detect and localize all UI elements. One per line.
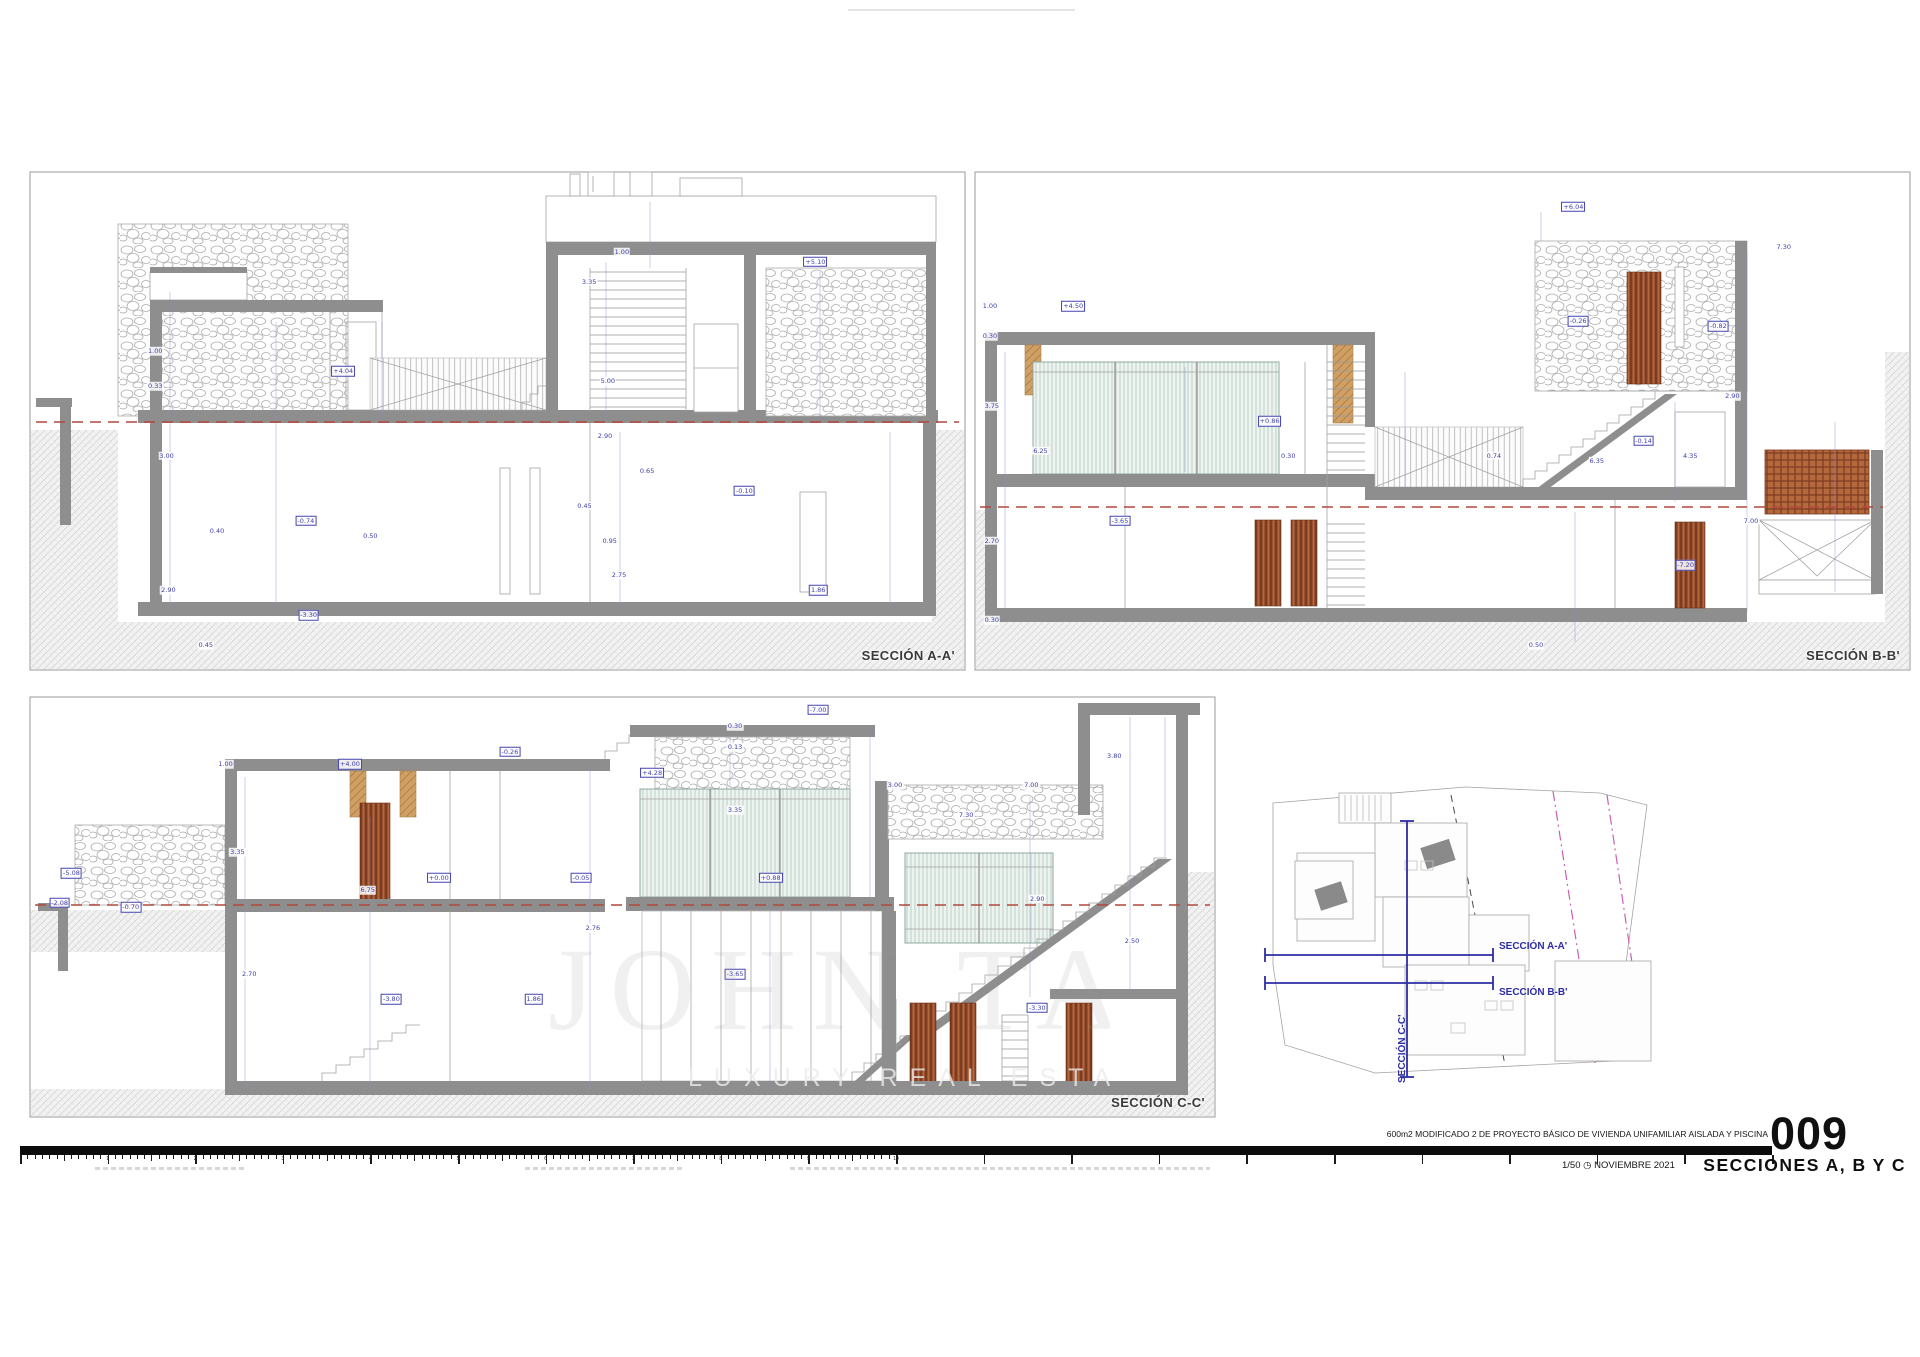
scale-tick [392,1155,393,1159]
scale-tick [319,1155,320,1159]
scale-tick [509,1155,510,1159]
scale-tick [655,1155,656,1159]
dim-label: +5.10 [803,256,827,267]
dim-label: 0.30 [1280,452,1296,461]
scale-tick-number: 5 [457,1156,460,1162]
dim-label: 0.30 [727,722,743,731]
scale-tick [852,1155,853,1161]
scale-tick [1246,1155,1248,1164]
section-c-box: -7.000.300.13+4.001.00-0.26+4.283.353.00… [30,697,1215,1117]
dim-label: 0.74 [1486,452,1502,461]
scale-tick [86,1155,87,1159]
scale-tick [662,1155,663,1159]
scale-tick [845,1155,846,1159]
scale-tick [881,1155,882,1159]
scale-tick [502,1155,503,1161]
scale-tick [130,1155,131,1159]
dim-label: 0.13 [727,743,743,752]
dim-label: 0.50 [362,531,378,540]
section-a-label: SECCIÓN A-A' [862,648,955,663]
scale-tick [648,1155,649,1159]
scale-tick [495,1155,496,1159]
dim-label: 1.86 [524,994,542,1005]
scale-tick [181,1155,182,1159]
scale-tick [553,1155,554,1159]
graphic-scale-bar [20,1146,1772,1155]
dim-label: 0.45 [198,641,214,650]
dim-label: +4.50 [1061,301,1085,312]
scale-tick [692,1155,693,1159]
dim-label: +0.88 [759,872,783,883]
scale-tick [246,1155,247,1159]
scale-tick [589,1155,590,1161]
scale-notes [95,1167,245,1170]
section-c-dims: -7.000.300.13+4.001.00-0.26+4.283.353.00… [30,697,1215,1117]
scale-tick [1684,1155,1686,1164]
scale-tick [597,1155,598,1159]
dim-label: -0.14 [1633,436,1654,447]
scale-tick [42,1155,43,1159]
scale-tick [429,1155,430,1159]
scale-tick [261,1155,262,1159]
scale-tick [560,1155,561,1159]
scale-tick [1334,1155,1336,1164]
dim-label: 0.40 [209,526,225,535]
scale-tick [349,1155,350,1159]
scale-tick [677,1155,678,1161]
scale-tick [830,1155,831,1159]
dim-label: 1.00 [147,347,163,356]
dim-label: 2.90 [597,432,613,441]
dim-label: -3.30 [1027,1003,1048,1014]
scale-tick-number: 4 [369,1156,372,1162]
scale-tick [305,1155,306,1159]
scale-tick [57,1155,58,1159]
dim-label: 3.75 [984,402,1000,411]
scale-tick [524,1155,525,1159]
scale-tick [363,1155,364,1159]
scale-value: 1/50 [1562,1160,1581,1171]
drawing-sheet: 1.000.33+4.043.000.40-0.740.502.90-3.303… [0,0,1920,1357]
dim-label: 6.25 [1032,447,1048,456]
scale-tick [611,1155,612,1159]
scale-tick [838,1155,839,1159]
scale-tick [385,1155,386,1159]
siteplan-label-a: SECCIÓN A-A' [1499,941,1567,952]
scale-tick [743,1155,744,1159]
scale-tick [137,1155,138,1159]
section-a-box: 1.000.33+4.043.000.40-0.740.502.90-3.303… [30,172,965,670]
scale-notes [525,1167,685,1170]
scale-tick [757,1155,758,1159]
scale-tick-number: 1 [106,1156,109,1162]
dim-label: 6.75 [359,886,375,895]
scale-tick [422,1155,423,1159]
scale-tick-number: 2 [194,1156,197,1162]
dim-label: 2.90 [1029,894,1045,903]
dim-label: +4.28 [640,767,664,778]
dim-label: 5.00 [600,377,616,386]
dim-label: -7.20 [1675,560,1696,571]
scale-tick-number: 3 [281,1156,284,1162]
dim-label: -0.70 [120,902,141,913]
dim-label: 1.00 [217,760,233,769]
scale-tick [20,1155,22,1164]
scale-tick [122,1155,123,1159]
section-b-label: SECCIÓN B-B' [1806,648,1900,663]
sheet-title: SECCIONES A, B Y C [1703,1155,1906,1176]
dim-label: 0.65 [639,467,655,476]
siteplan-label-c: SECCIÓN C-C' [1397,1015,1408,1084]
dim-label: +0.86 [1258,416,1282,427]
scale-tick [166,1155,167,1159]
scale-tick [144,1155,145,1159]
dim-label: +4.04 [331,366,355,377]
dim-label: 0.30 [982,332,998,341]
dim-label: 1.00 [982,302,998,311]
scale-tick [224,1155,225,1159]
scale-tick [480,1155,481,1159]
dim-label: 2.70 [984,536,1000,545]
scale-tick [823,1155,824,1159]
scale-tick [27,1155,28,1159]
scale-tick [487,1155,488,1159]
scale-tick-number: 6 [544,1156,547,1162]
compass-icon: ◷ [1583,1160,1591,1171]
dim-label: 7.30 [1776,242,1792,251]
scale-tick [765,1155,766,1161]
dim-label: 4.35 [1682,452,1698,461]
dim-label: 2.75 [611,571,627,580]
scale-tick [465,1155,466,1159]
dim-label: 2.50 [1124,936,1140,945]
scale-tick [801,1155,802,1159]
scale-tick [706,1155,707,1159]
scale-tick [874,1155,875,1159]
scale-tick [78,1155,79,1159]
scale-tick [867,1155,868,1159]
dim-label: 3.00 [158,452,174,461]
dim-label: 0.50 [1528,641,1544,650]
scale-tick [670,1155,671,1159]
scale-tick [297,1155,298,1159]
scale-tick-number: 8 [719,1156,722,1162]
dim-label: 0.33 [147,382,163,391]
scale-tick [1509,1155,1511,1164]
dim-label: 2.76 [585,924,601,933]
scale-tick [64,1155,65,1161]
scale-tick [816,1155,817,1159]
dim-label: -3.30 [298,610,319,621]
scale-tick [341,1155,342,1159]
scale-tick [115,1155,116,1159]
scale-tick [254,1155,255,1159]
scale-tick [451,1155,452,1159]
dim-label: -0.26 [500,746,521,757]
project-title: 600m2 MODIFICADO 2 DE PROYECTO BÁSICO DE… [1387,1129,1768,1139]
dim-label: -3.65 [1110,515,1131,526]
scale-notes [790,1167,1210,1170]
scale-tick-number: 7 [632,1156,635,1162]
dim-label: 2.70 [241,970,257,979]
dim-label: -3.65 [725,969,746,980]
scale-tick [473,1155,474,1159]
section-b-box: +6.04+4.501.000.303.75-0.26-0.82+0.866.2… [975,172,1910,670]
scale-tick [71,1155,72,1159]
dim-label: 2.90 [160,586,176,595]
scale-tick [699,1155,700,1159]
scale-tick [1159,1155,1161,1164]
scale-tick [735,1155,736,1159]
scale-tick [575,1155,576,1159]
section-b-dims: +6.04+4.501.000.303.75-0.26-0.82+0.866.2… [975,172,1910,670]
scale-tick [151,1155,152,1161]
dim-label: -0.10 [734,485,755,496]
section-a-dims: 1.000.33+4.043.000.40-0.740.502.90-3.303… [30,172,965,670]
scale-tick [1071,1155,1073,1164]
scale-tick [210,1155,211,1159]
scale-tick [604,1155,605,1159]
siteplan-label-b: SECCIÓN B-B' [1499,987,1568,998]
sheet-number: 009 [1770,1108,1848,1160]
scale-tick [414,1155,415,1161]
scale-tick [356,1155,357,1159]
dim-label: 0.30 [984,616,1000,625]
scale-tick [217,1155,218,1159]
section-c-label: SECCIÓN C-C' [1111,1095,1205,1110]
scale-tick [794,1155,795,1159]
scale-tick [400,1155,401,1159]
scale-tick [750,1155,751,1159]
scale-tick [203,1155,204,1159]
scale-tick [159,1155,160,1159]
scale-tick-number: 10 [893,1156,899,1162]
scale-tick [290,1155,291,1159]
scale-tick [100,1155,101,1159]
scale-tick [582,1155,583,1159]
scale-tick [568,1155,569,1159]
scale-tick [268,1155,269,1159]
dim-label: -7.00 [808,704,829,715]
scale-tick [276,1155,277,1159]
scale-tick [787,1155,788,1159]
dim-label: 7.30 [958,810,974,819]
scale-tick [334,1155,335,1159]
scale-tick [779,1155,780,1159]
dim-label: -0.82 [1708,321,1729,332]
scale-tick [619,1155,620,1159]
dim-label: 0.95 [601,536,617,545]
scale-tick [239,1155,240,1161]
scale-tick [49,1155,50,1159]
dim-label: 3.35 [229,848,245,857]
scale-tick [312,1155,313,1159]
scale-tick [1422,1155,1424,1164]
dim-label: 1.86 [809,585,827,596]
dim-label: 3.35 [727,806,743,815]
scale-tick [516,1155,517,1159]
dim-label: 2.90 [1724,392,1740,401]
scale-tick [443,1155,444,1159]
scale-tick [327,1155,328,1161]
dim-label: +0.00 [427,872,451,883]
scale-tick [728,1155,729,1159]
scale-tick [407,1155,408,1159]
scale-tick [436,1155,437,1159]
siteplan: SECCIÓN A-A' SECCIÓN B-B' SECCIÓN C-C' [1255,765,1655,1105]
dim-label: -0.05 [571,872,592,883]
scale-tick [538,1155,539,1159]
dim-label: 3.00 [887,781,903,790]
dim-label: +4.00 [338,759,362,770]
scale-tick [93,1155,94,1159]
dim-label: -3.80 [381,994,402,1005]
scale-tick [714,1155,715,1159]
dim-label: -0.26 [1568,316,1589,327]
scale-tick-number: 9 [807,1156,810,1162]
dim-label: 6.35 [1589,457,1605,466]
scale-tick [860,1155,861,1159]
scale-tick [173,1155,174,1159]
scale-and-date: 1/50 ◷ NOVIEMBRE 2021 [1562,1160,1675,1171]
dim-label: 7.00 [1023,781,1039,790]
date-value: NOVIEMBRE 2021 [1594,1160,1675,1171]
scale-tick [772,1155,773,1159]
dim-label: 3.80 [1106,752,1122,761]
scale-tick [626,1155,627,1159]
dim-label: 1.00 [614,247,630,256]
scale-tick [188,1155,189,1159]
scale-tick [531,1155,532,1159]
scale-tick [684,1155,685,1159]
scale-tick [984,1155,986,1164]
scale-tick [232,1155,233,1159]
dim-label: 7.00 [1743,516,1759,525]
dim-label: -2.08 [49,898,70,909]
dim-label: -0.74 [295,515,316,526]
scale-tick [378,1155,379,1159]
scale-tick [35,1155,36,1159]
dim-label: -5.08 [61,868,82,879]
dim-label: +6.04 [1561,202,1585,213]
dim-label: 0.45 [576,501,592,510]
scale-tick [889,1155,890,1159]
scale-tick [641,1155,642,1159]
dim-label: 3.35 [581,277,597,286]
